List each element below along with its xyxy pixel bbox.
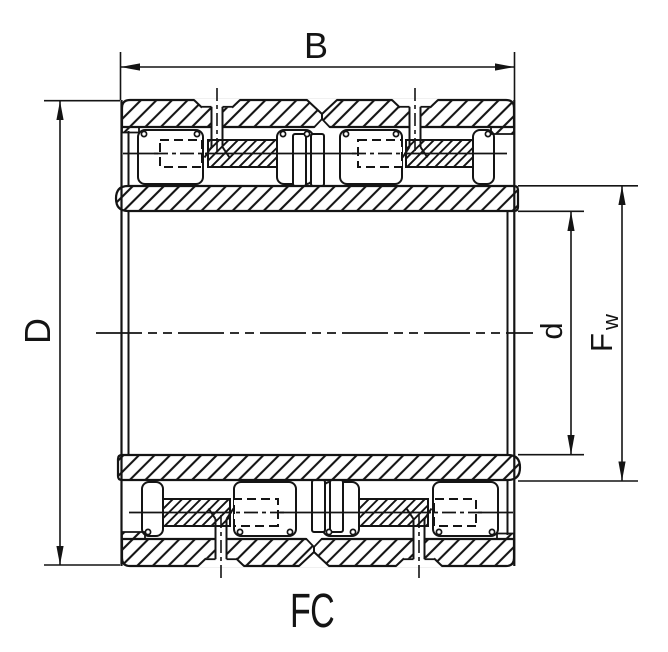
dim-label-raceway-main: F: [584, 333, 619, 352]
inner-ring-flange: [311, 134, 324, 186]
b-arrow-right: [495, 63, 515, 70]
d-outer-arrow-bottom: [56, 546, 63, 565]
dim-label-bore-diameter: d: [534, 322, 569, 339]
inner-ring-flange: [293, 134, 306, 186]
bearing-drawing-canvas: B D d F w FC: [0, 0, 668, 652]
d-outer-arrow-top: [56, 101, 63, 120]
bearing-type-label: FC: [290, 585, 334, 638]
bearing-cross-section-svg: B D d F w FC: [0, 0, 668, 652]
fw-arrow-top: [618, 186, 625, 205]
dim-label-raceway-sub: w: [598, 314, 623, 331]
outer-ring-rib-left: [122, 127, 139, 133]
bearing-top-half: [116, 88, 518, 211]
bore-arrow-bottom: [567, 435, 574, 455]
fw-arrow-bottom: [618, 462, 625, 482]
bore-arrow-top: [567, 211, 574, 231]
b-arrow-left: [121, 63, 141, 70]
dim-label-outer-diameter: D: [17, 318, 58, 344]
bearing-bottom-half: [118, 455, 520, 578]
outer-ring-rib-right: [491, 127, 514, 134]
dim-label-b: B: [304, 25, 328, 66]
inner-ring: [116, 186, 518, 211]
